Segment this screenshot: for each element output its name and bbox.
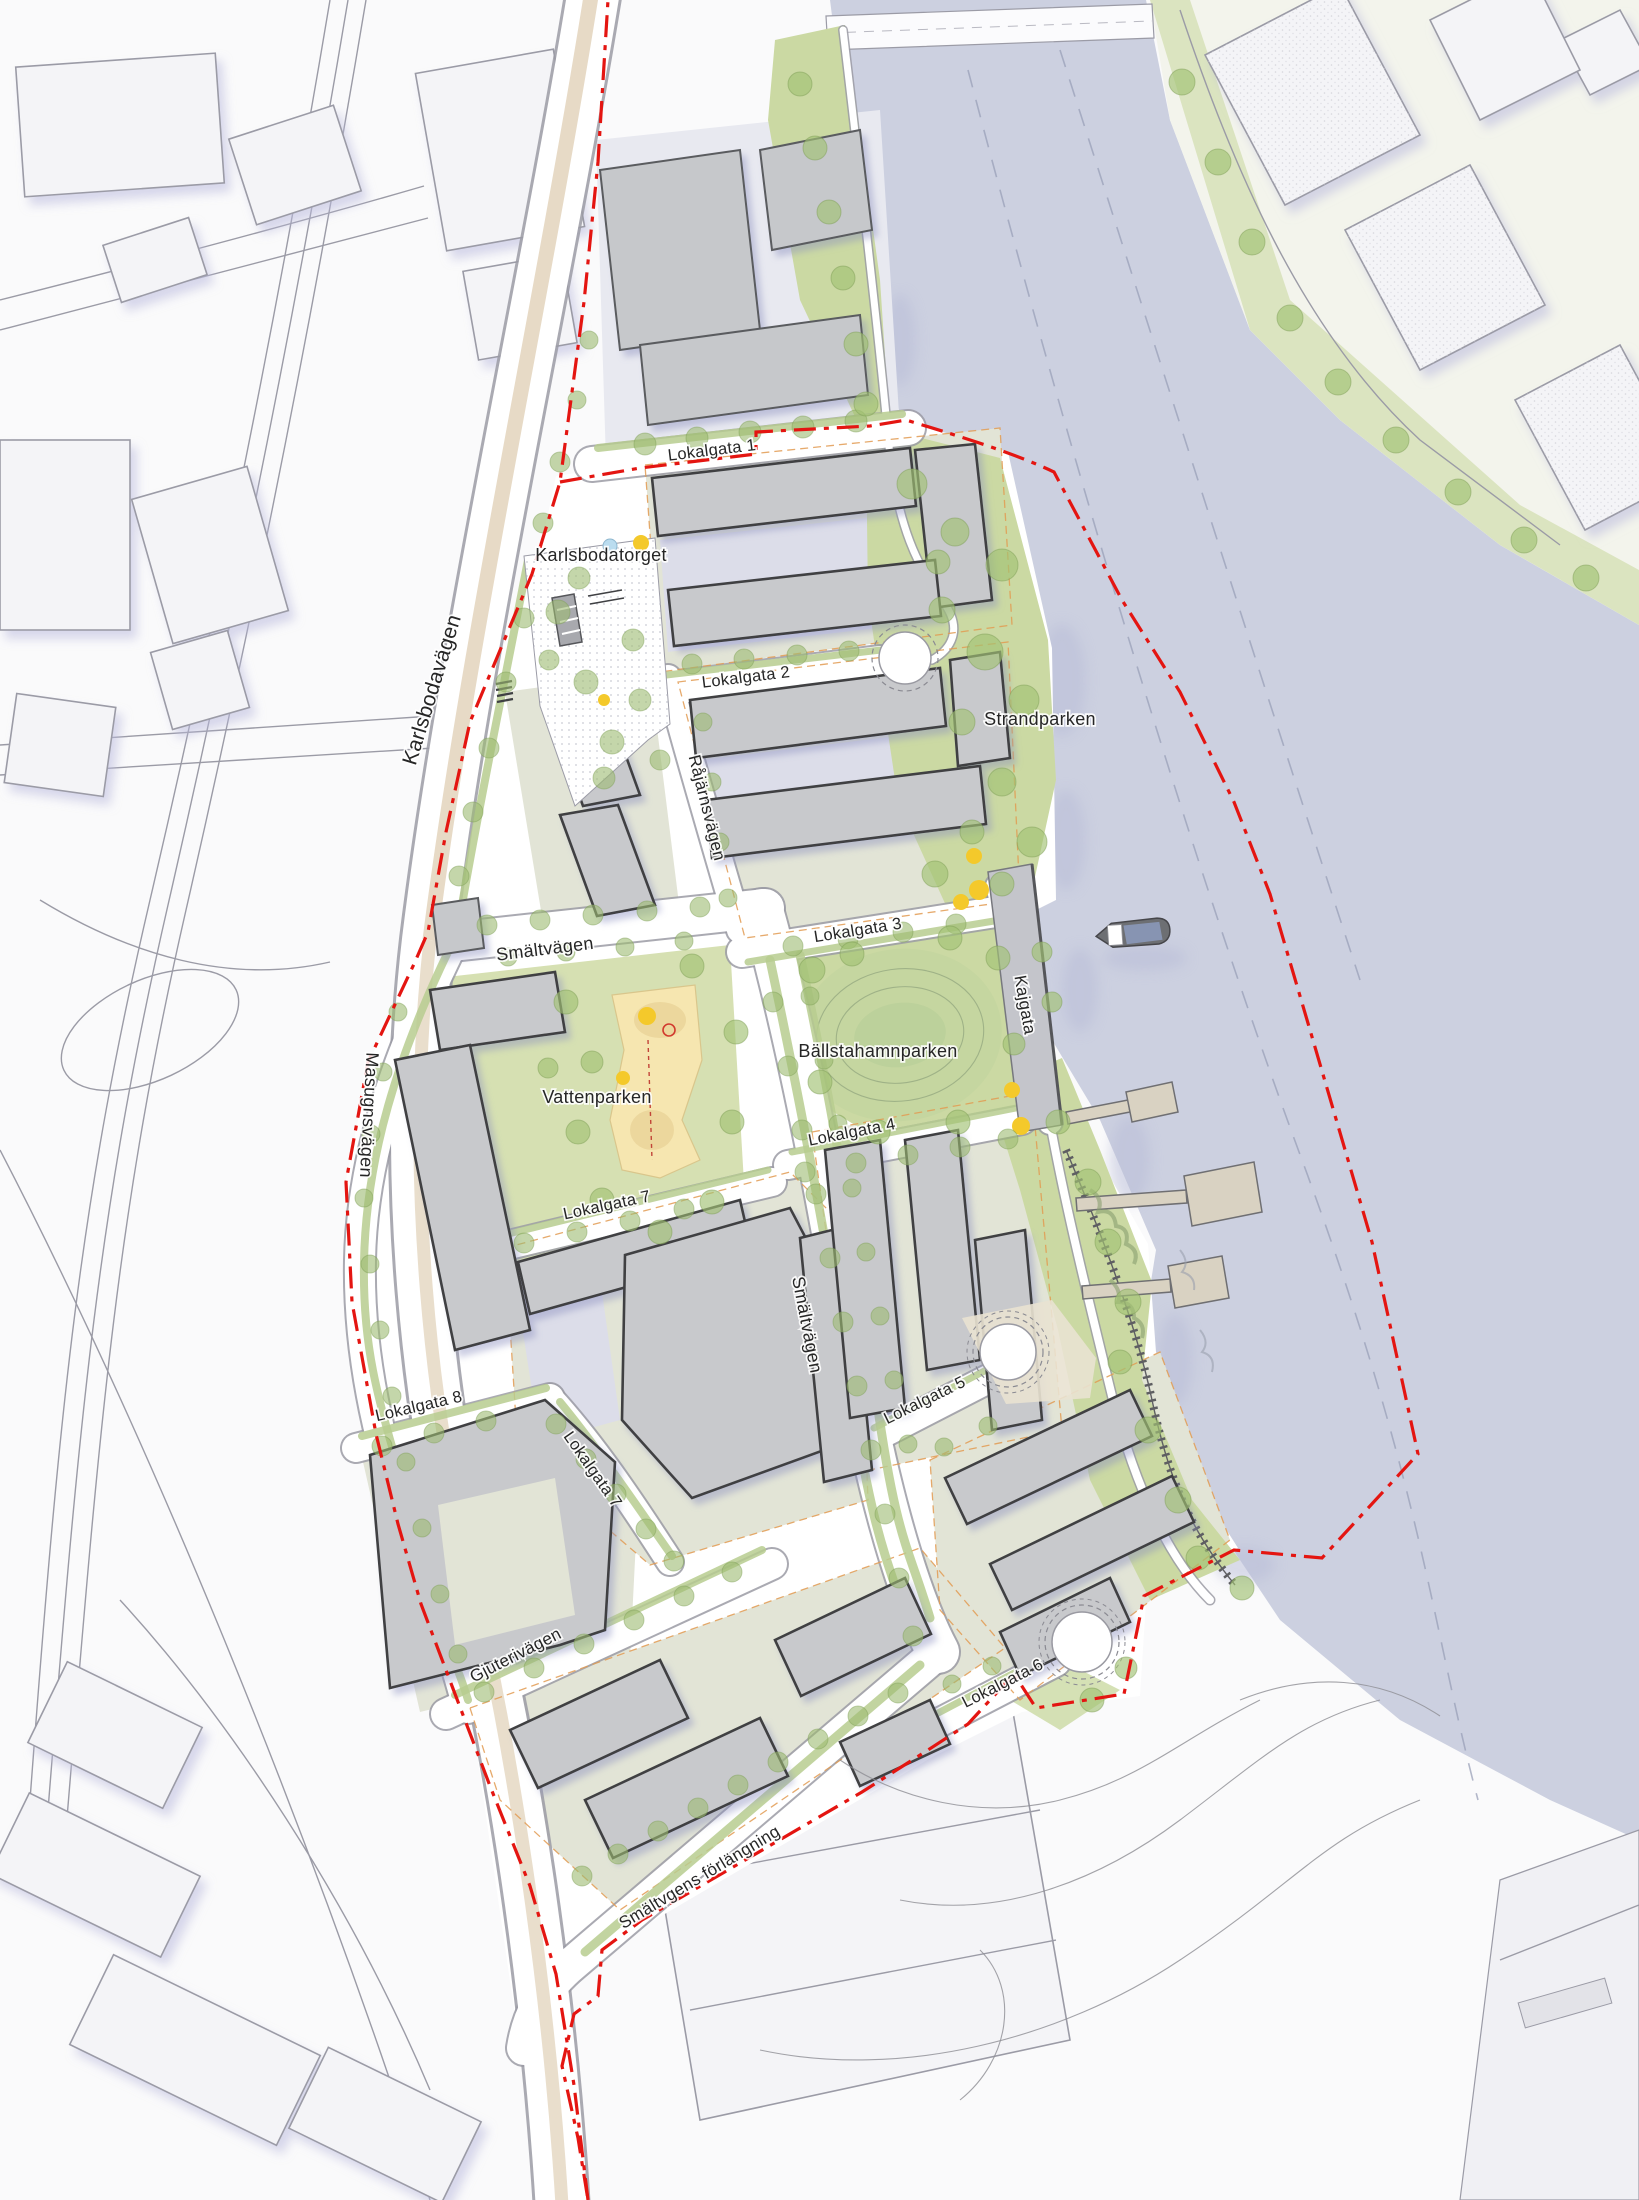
building-existing <box>432 898 484 955</box>
place-label-vattenparken: Vattenparken <box>542 1087 651 1107</box>
pier-platform <box>1168 1256 1229 1308</box>
place-label-ballstahamnparken: Bällstahamnparken <box>798 1041 957 1061</box>
map-svg: Karlsbodavägen Masugnsvägen Råjärnsvägen… <box>0 0 1639 2200</box>
vattenparken-playground <box>610 985 702 1178</box>
building-existing <box>600 150 760 350</box>
play-feature-yellow <box>638 1007 656 1025</box>
play-feature-yellow <box>616 1071 630 1085</box>
place-label-strandparken: Strandparken <box>984 709 1096 729</box>
plan-illustration-map: Karlsbodavägen Masugnsvägen Råjärnsvägen… <box>0 0 1639 2200</box>
place-label-karlsbodatorget: Karlsbodatorget <box>535 545 667 565</box>
boat-cabin <box>1107 925 1122 946</box>
building-courtyard <box>438 1478 575 1645</box>
play-feature-yellow <box>598 694 610 706</box>
